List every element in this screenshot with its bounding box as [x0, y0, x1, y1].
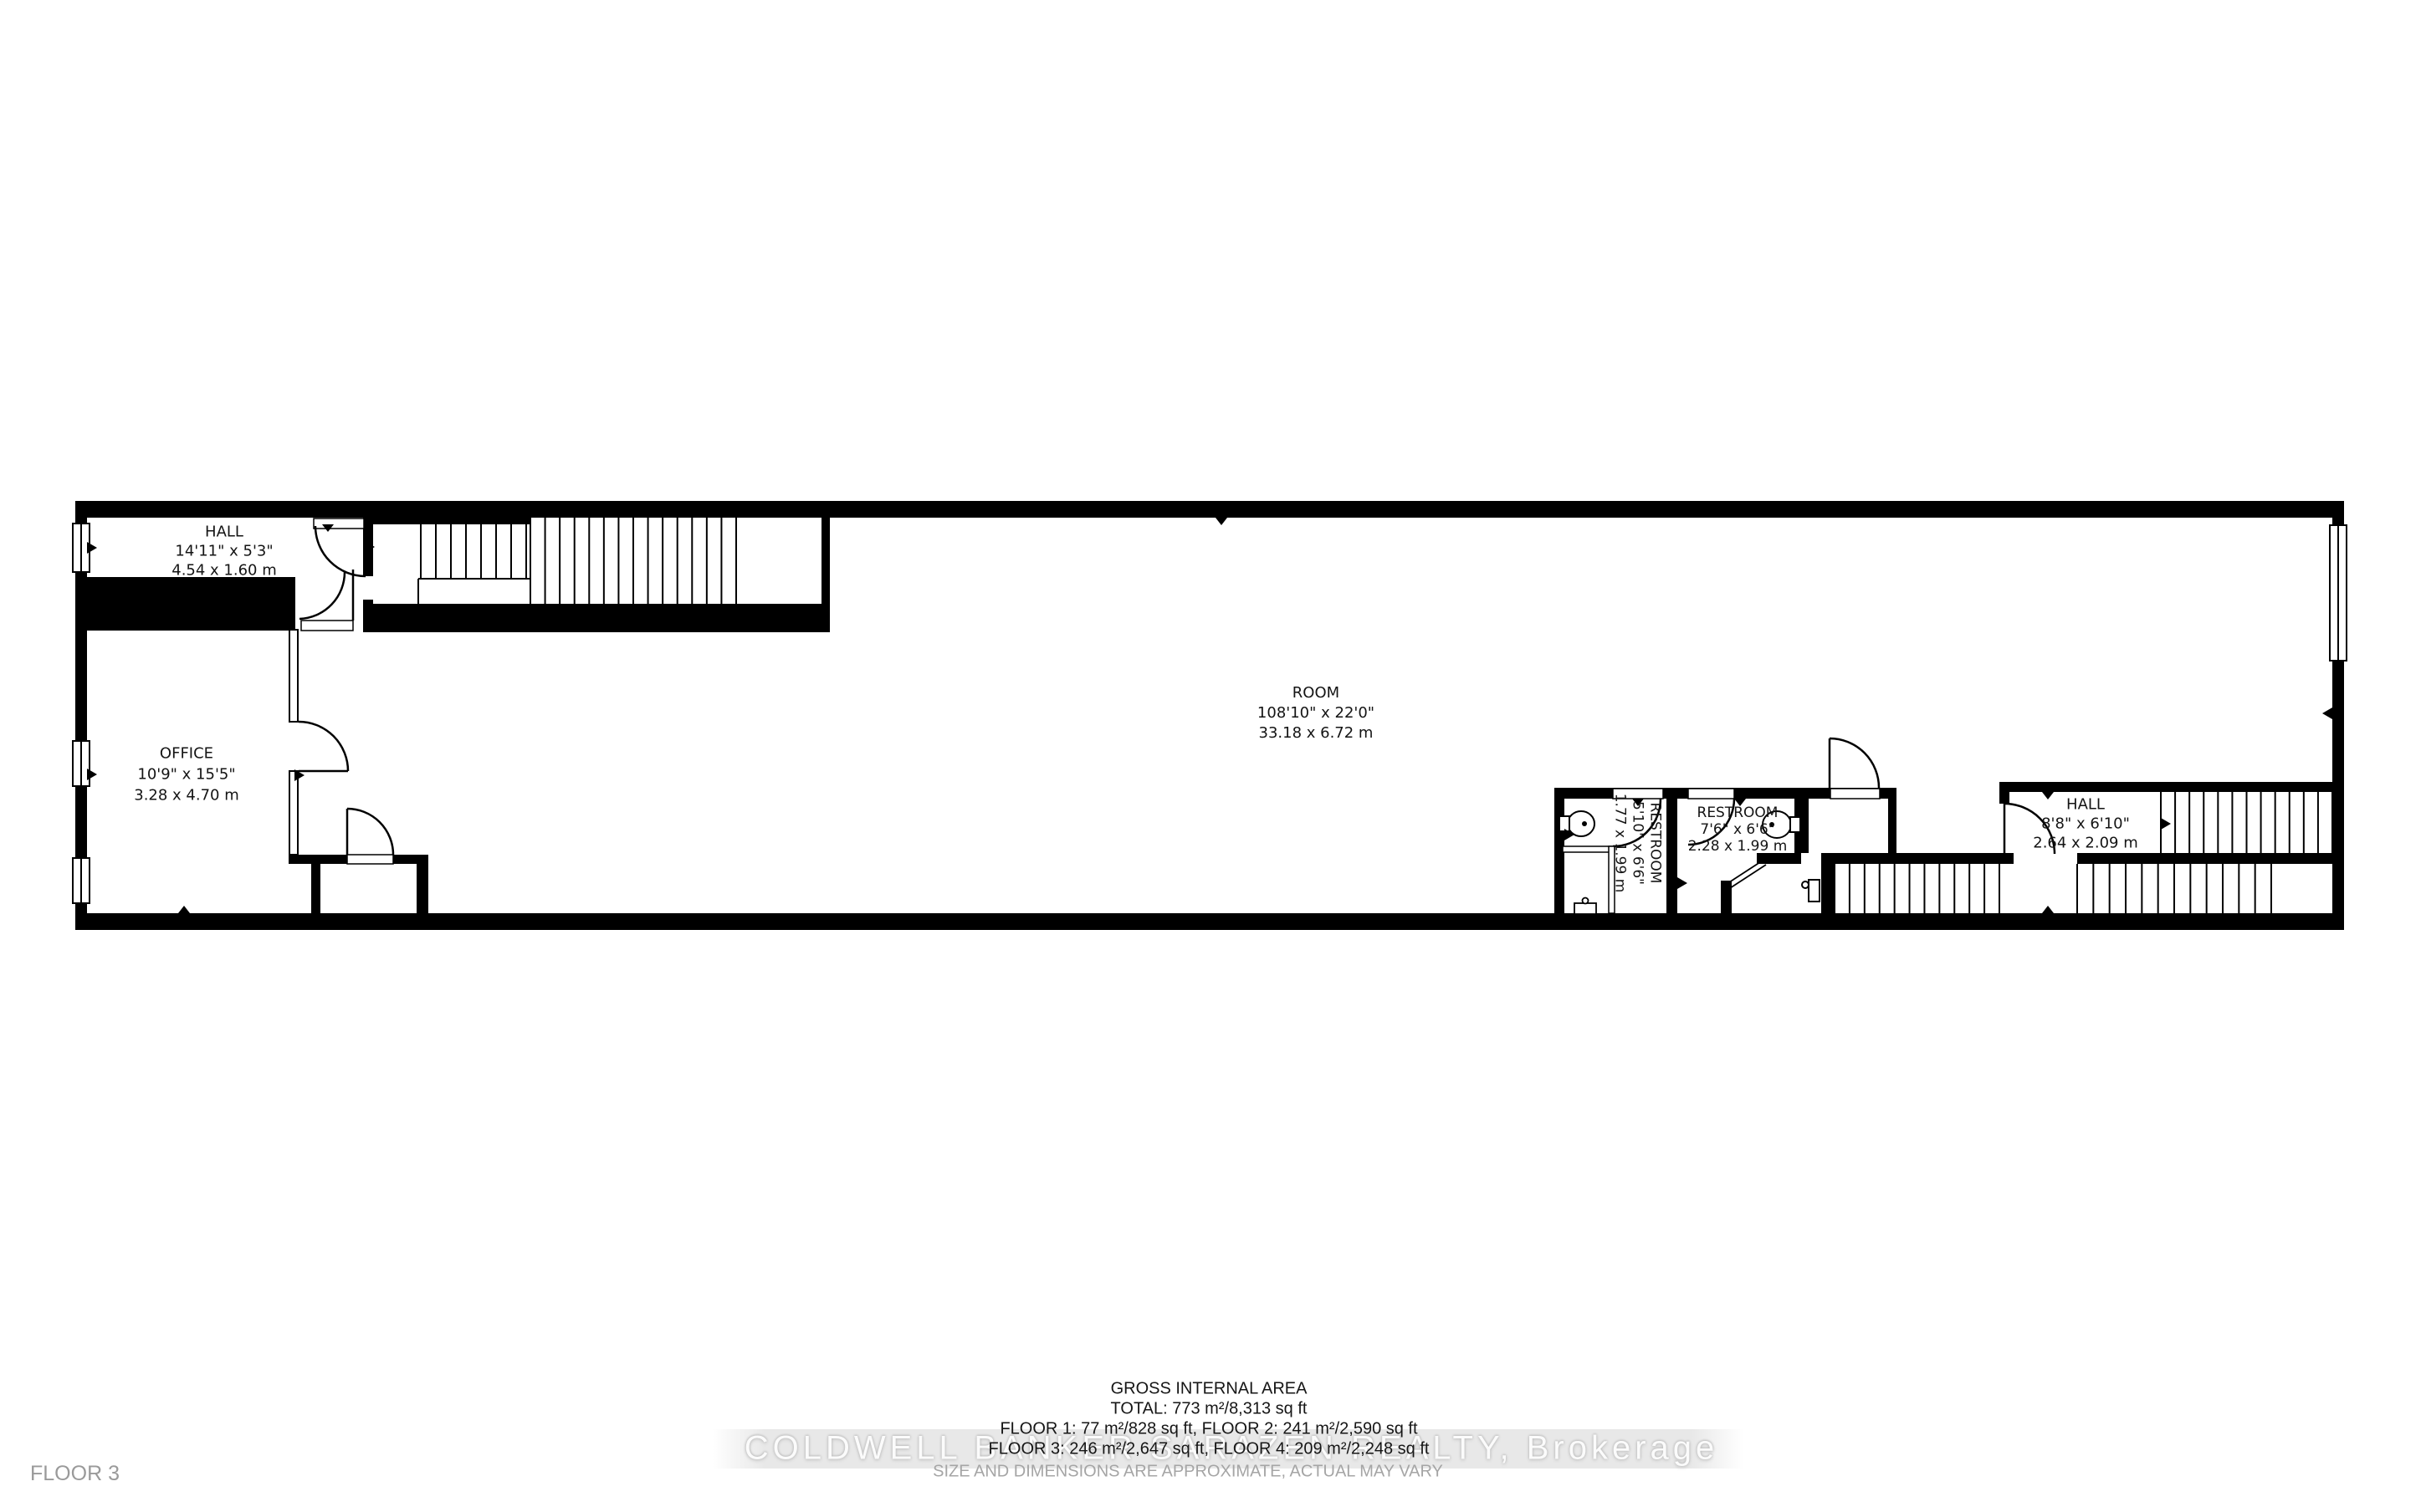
room-name: HALL: [171, 523, 277, 542]
summary-floors-1-2: FLOOR 1: 77 m²/828 sq ft, FLOOR 2: 241 m…: [1000, 1420, 1417, 1439]
room-dims-ft: 10'9" x 15'5": [134, 764, 239, 785]
stairs-top-left-main-flight: [530, 518, 736, 604]
summary-title: GROSS INTERNAL AREA: [1111, 1380, 1308, 1399]
glazed-partition: [289, 630, 298, 855]
room-name: ROOM: [1257, 683, 1374, 703]
room-dims-ft: 14'11" x 5'3": [171, 542, 277, 561]
door-arc-hall-vestibule-upper: [315, 526, 366, 576]
stairs-upper-right-run: [2161, 792, 2332, 853]
room-name: RESTROOM: [1646, 794, 1664, 893]
door-arc-office: [299, 722, 348, 771]
room-dims-m: 2.28 x 1.99 m: [1688, 838, 1788, 855]
floorplan-drawing: [0, 0, 2421, 1512]
room-dims-m: 2.64 x 2.09 m: [2033, 834, 2138, 853]
room-name: OFFICE: [134, 743, 239, 764]
wall-fixture-icon: [1802, 880, 1820, 902]
exterior-walls: [75, 501, 2344, 930]
door-arc-hall-vestibule-lower: [299, 572, 345, 619]
summary-floors-3-4: FLOOR 3: 246 m²/2,647 sq ft, FLOOR 4: 20…: [989, 1440, 1430, 1459]
room-label-restroom-right: RESTROOM 7'6" x 6'6" 2.28 x 1.99 m: [1688, 805, 1788, 855]
stairs-bottom-right-run-left: [1835, 864, 1999, 913]
room-label-restroom-left: RESTROOM 5'10" x 6'6" 1.77 x 1.99 m: [1611, 794, 1664, 893]
room-label-hall-left: HALL 14'11" x 5'3" 4.54 x 1.60 m: [171, 523, 277, 580]
room-dims-m: 4.54 x 1.60 m: [171, 561, 277, 580]
room-name: RESTROOM: [1688, 805, 1788, 821]
room-dims-m: 3.28 x 4.70 m: [134, 785, 239, 806]
room-label-hall-right: HALL 8'8" x 6'10" 2.64 x 2.09 m: [2033, 795, 2138, 853]
room-dims-ft: 108'10" x 22'0": [1257, 703, 1374, 723]
sink-icon: [1574, 898, 1596, 915]
diagonal-door: [1727, 861, 1766, 888]
floor-page-label: FLOOR 3: [30, 1462, 120, 1486]
room-label-room: ROOM 108'10" x 22'0" 33.18 x 6.72 m: [1257, 683, 1374, 743]
interior-walls: [75, 518, 2344, 918]
room-label-office: OFFICE 10'9" x 15'5" 3.28 x 4.70 m: [134, 743, 239, 806]
room-dims-m: 1.77 x 1.99 m: [1611, 794, 1629, 893]
door-arc-closet: [1830, 738, 1879, 788]
window-markers: [73, 524, 2347, 903]
door-arc-office-vestibule: [347, 809, 393, 855]
summary-disclaimer: SIZE AND DIMENSIONS ARE APPROXIMATE, ACT…: [933, 1463, 1443, 1482]
room-name: HALL: [2033, 795, 2138, 815]
room-dims-ft: 7'6" x 6'6": [1688, 821, 1788, 838]
room-dims-ft: 5'10" x 6'6": [1629, 794, 1646, 893]
room-dims-ft: 8'8" x 6'10": [2033, 815, 2138, 834]
summary-total: TOTAL: 773 m²/8,313 sq ft: [1111, 1400, 1308, 1419]
floorplan-page: HALL 14'11" x 5'3" 4.54 x 1.60 m OFFICE …: [0, 0, 2421, 1512]
stair-landing-edges: [418, 579, 530, 604]
stairs-top-left-short-flight: [421, 523, 526, 579]
stairs-bottom-right-run-right: [2077, 864, 2271, 913]
door-swings: [299, 526, 2055, 855]
room-dims-m: 33.18 x 6.72 m: [1257, 723, 1374, 743]
